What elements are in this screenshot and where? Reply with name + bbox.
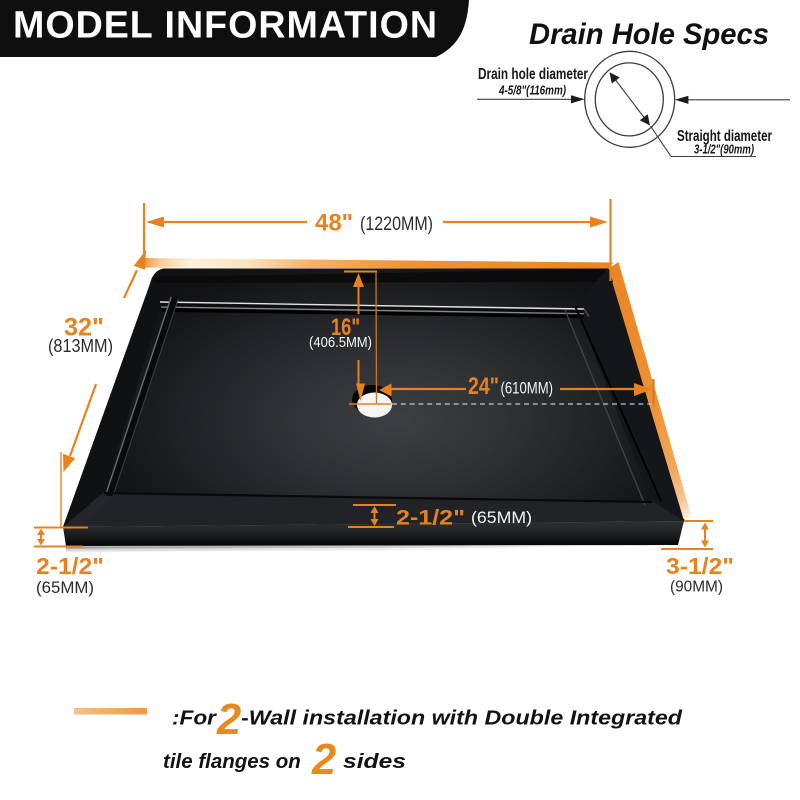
svg-text:tile flanges on: tile flanges on bbox=[163, 750, 301, 773]
svg-text:Drain hole diameter: Drain hole diameter bbox=[478, 66, 588, 83]
svg-text:(406.5MM): (406.5MM) bbox=[309, 335, 372, 351]
svg-text:(65MM): (65MM) bbox=[36, 579, 94, 597]
svg-text:(90MM): (90MM) bbox=[670, 579, 723, 596]
svg-text:-Wall installation with Double: -Wall installation with Double Integrate… bbox=[241, 707, 683, 730]
svg-text:3-1/2": 3-1/2" bbox=[666, 553, 734, 579]
svg-text:4-5/8"(116mm): 4-5/8"(116mm) bbox=[498, 84, 566, 98]
svg-text:Drain Hole Specs: Drain Hole Specs bbox=[529, 18, 769, 51]
svg-text::For: :For bbox=[172, 707, 217, 730]
svg-text:sides: sides bbox=[343, 750, 406, 773]
svg-text:2-1/2": 2-1/2" bbox=[36, 553, 104, 579]
svg-text:2-1/2": 2-1/2" bbox=[396, 507, 465, 530]
svg-text:2: 2 bbox=[216, 696, 241, 744]
svg-text:(65MM): (65MM) bbox=[471, 509, 532, 527]
svg-text:3-1/2"(90mm): 3-1/2"(90mm) bbox=[694, 143, 754, 157]
svg-text:24": 24" bbox=[468, 373, 499, 400]
svg-text:(1220MM): (1220MM) bbox=[360, 213, 433, 235]
svg-text:MODEL INFORMATION: MODEL INFORMATION bbox=[13, 5, 438, 47]
svg-text:(610MM): (610MM) bbox=[501, 380, 554, 398]
svg-text:(813MM): (813MM) bbox=[48, 336, 113, 356]
svg-text:48": 48" bbox=[315, 210, 353, 237]
svg-text:2: 2 bbox=[311, 736, 336, 784]
